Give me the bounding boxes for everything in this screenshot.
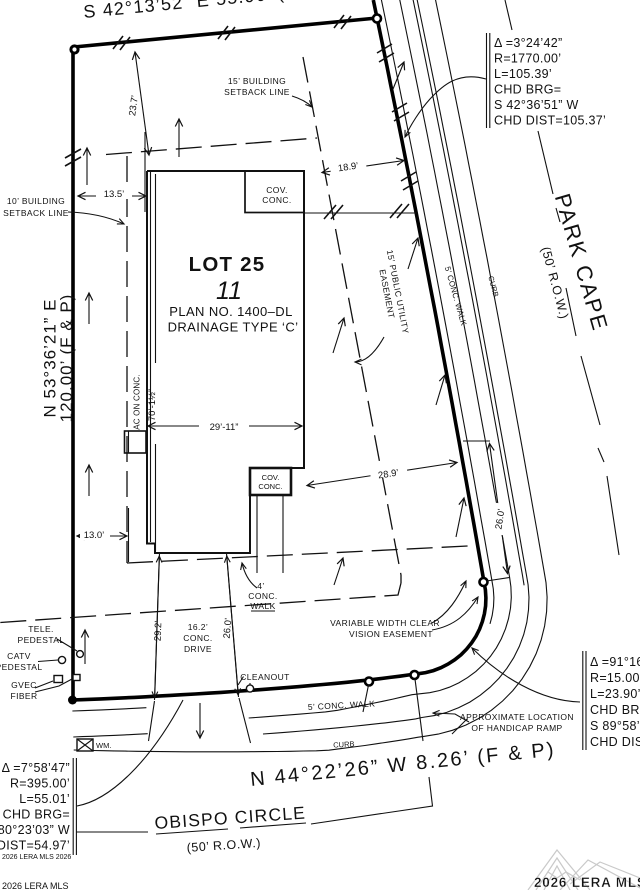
svg-text:FIBER: FIBER xyxy=(10,691,37,701)
svg-text:26.0’: 26.0’ xyxy=(222,618,235,639)
svg-text:120.00’ (F & P): 120.00’ (F & P) xyxy=(57,294,76,423)
svg-text:16.2’: 16.2’ xyxy=(188,622,208,632)
svg-text:CHD BRG=: CHD BRG= xyxy=(590,703,640,717)
svg-text:L=105.39’: L=105.39’ xyxy=(494,67,552,81)
svg-text:PEDESTAL: PEDESTAL xyxy=(0,662,42,672)
svg-text:WM.: WM. xyxy=(96,741,111,750)
svg-text:CHD DIST=54.97’: CHD DIST=54.97’ xyxy=(0,839,70,853)
svg-text:Δ =3°24’42”: Δ =3°24’42” xyxy=(494,36,562,50)
svg-text:R=15.00’: R=15.00’ xyxy=(590,671,640,685)
svg-text:2026 LERA MLS: 2026 LERA MLS xyxy=(534,875,640,890)
svg-text:70’-1½”: 70’-1½” xyxy=(147,389,158,421)
svg-text:DRAINAGE TYPE ‘C’: DRAINAGE TYPE ‘C’ xyxy=(168,320,299,335)
svg-text:CHD BRG=: CHD BRG= xyxy=(494,83,561,97)
svg-text:CONC.: CONC. xyxy=(183,633,212,643)
svg-text:DRIVE: DRIVE xyxy=(184,644,212,654)
svg-text:29’-11”: 29’-11” xyxy=(210,422,239,433)
svg-text:APPROXIMATE LOCATION: APPROXIMATE LOCATION xyxy=(460,712,574,722)
svg-text:COV.: COV. xyxy=(262,473,280,482)
svg-text:10’ BUILDING: 10’ BUILDING xyxy=(7,196,65,206)
svg-text:LOT 25: LOT 25 xyxy=(189,253,266,276)
svg-text:CHD BRG=: CHD BRG= xyxy=(3,808,70,822)
svg-text:13.5’: 13.5’ xyxy=(104,189,125,200)
svg-text:R=395.00’: R=395.00’ xyxy=(10,777,70,791)
svg-text:29.2’: 29.2’ xyxy=(153,620,165,641)
svg-text:OF HANDICAP RAMP: OF HANDICAP RAMP xyxy=(471,723,562,733)
svg-text:CHD DIST=21.45’: CHD DIST=21.45’ xyxy=(590,735,640,749)
svg-text:L=23.90’: L=23.90’ xyxy=(590,687,640,701)
svg-text:SETBACK LINE: SETBACK LINE xyxy=(3,208,69,218)
svg-text:VISION EASEMENT: VISION EASEMENT xyxy=(349,629,433,639)
svg-text:S 89°58’42” E: S 89°58’42” E xyxy=(590,719,640,733)
svg-text:CHD DIST=105.37’: CHD DIST=105.37’ xyxy=(494,114,606,128)
svg-text:GVEC: GVEC xyxy=(11,680,37,690)
svg-text:TELE.: TELE. xyxy=(28,624,54,634)
svg-text:2026 LERA MLS: 2026 LERA MLS xyxy=(2,881,69,890)
svg-text:11: 11 xyxy=(216,277,242,305)
svg-text:VARIABLE WIDTH CLEAR: VARIABLE WIDTH CLEAR xyxy=(330,618,440,628)
svg-text:AC ON CONC.: AC ON CONC. xyxy=(133,374,142,430)
svg-text:PLAN NO. 1400–DL: PLAN NO. 1400–DL xyxy=(169,304,292,319)
svg-text:Δ =91°16’40”: Δ =91°16’40” xyxy=(590,655,640,669)
svg-text:WALK: WALK xyxy=(250,601,275,611)
svg-text:CURB: CURB xyxy=(333,739,355,749)
svg-text:13.0’: 13.0’ xyxy=(84,530,105,541)
svg-text:SETBACK LINE: SETBACK LINE xyxy=(224,87,290,97)
svg-text:L=55.01’: L=55.01’ xyxy=(19,792,70,806)
svg-text:4’: 4’ xyxy=(257,581,264,591)
svg-text:COV.: COV. xyxy=(266,185,288,195)
svg-text:CONC.: CONC. xyxy=(262,195,291,205)
svg-text:CONC.: CONC. xyxy=(258,482,282,491)
svg-text:PEDESTAL: PEDESTAL xyxy=(18,635,65,645)
svg-text:S 42°36’51” W: S 42°36’51” W xyxy=(494,98,579,112)
svg-text:2026 LERA MLS 2026: 2026 LERA MLS 2026 xyxy=(2,854,71,861)
svg-text:R=1770.00’: R=1770.00’ xyxy=(494,52,561,66)
svg-text:CATV: CATV xyxy=(7,651,31,661)
svg-text:Δ =7°58’47”: Δ =7°58’47” xyxy=(2,761,70,775)
svg-text:CLEANOUT: CLEANOUT xyxy=(240,672,290,682)
svg-text:S 80°23’03” W: S 80°23’03” W xyxy=(0,823,70,837)
svg-text:CONC.: CONC. xyxy=(248,591,277,601)
svg-text:15’ BUILDING: 15’ BUILDING xyxy=(228,76,286,86)
